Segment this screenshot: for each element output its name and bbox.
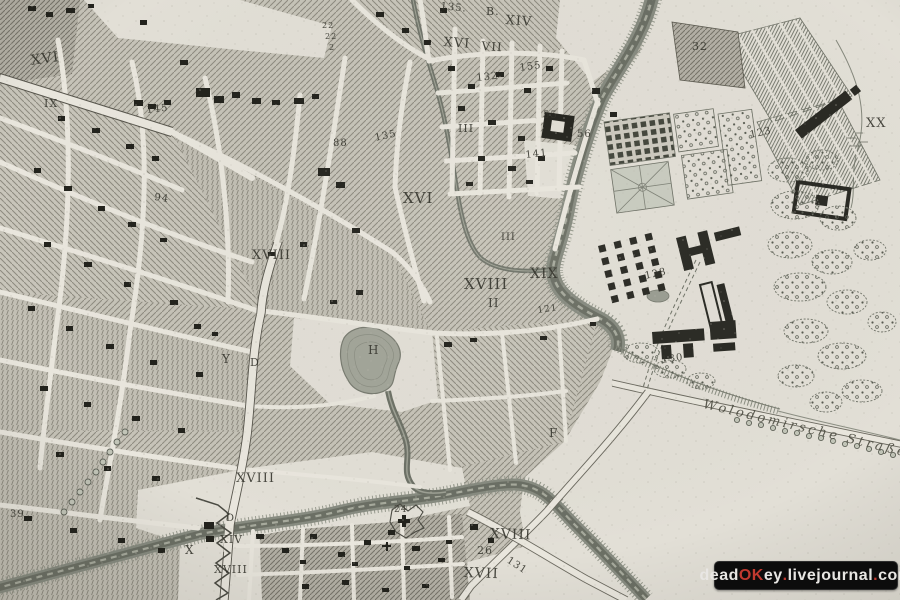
- watermark-text-segment: dead: [700, 568, 739, 584]
- watermark-text-segment: OK: [739, 568, 764, 584]
- map-engraving: [0, 0, 900, 600]
- watermark-text-segment: com: [878, 568, 900, 584]
- map-scan: XVIIX145942222288135135.B.XIVXVIVII13215…: [0, 0, 900, 600]
- vignette: [0, 0, 900, 600]
- watermark-text-segment: ey: [764, 568, 783, 584]
- watermark-badge: deadOKey.livejournal.com: [714, 561, 898, 590]
- watermark-text-segment: livejournal: [788, 568, 874, 584]
